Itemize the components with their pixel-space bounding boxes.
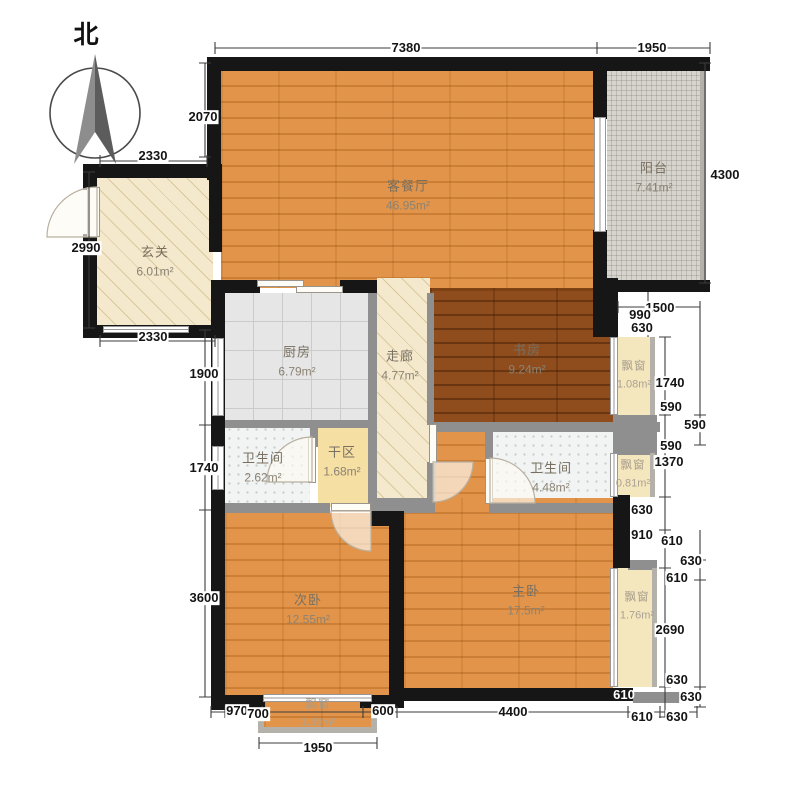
wall <box>207 57 710 71</box>
dim-label: 630 <box>665 710 689 724</box>
wall <box>593 71 607 119</box>
dim-label: 2330 <box>138 330 169 344</box>
wall <box>427 293 434 425</box>
dim-label: 700 <box>246 707 270 721</box>
bay-label-master: 飘窗 1.76m² <box>620 590 654 625</box>
dim-label: 590 <box>683 418 707 432</box>
bay-label-bedroom: 飘窗 1.39m² <box>301 697 335 732</box>
room-label-balcony: 阳台 7.41m² <box>635 159 672 198</box>
bay-master-floor <box>613 568 652 687</box>
kitchen-slider-panel <box>296 286 343 293</box>
dim-label: 1740 <box>655 376 686 390</box>
dim-label: 4300 <box>710 168 741 182</box>
dim-label: 590 <box>659 400 683 414</box>
dim-label: 610 <box>660 534 684 548</box>
room-label-study: 书房 9.24m² <box>508 341 545 380</box>
bed-second-door-leaf <box>331 503 371 511</box>
dim-label: 630 <box>665 673 689 687</box>
room-label-bed-master: 主卧 17.5m² <box>507 582 544 621</box>
bay-label-bath: 飘窗 0.81m² <box>616 458 650 493</box>
dim-label: 1900 <box>189 367 220 381</box>
dim-label: 630 <box>630 503 654 517</box>
wall <box>340 280 377 293</box>
wall <box>211 420 377 428</box>
dim-label: 7380 <box>391 41 422 55</box>
balcony-railing <box>700 63 706 285</box>
room-label-living: 客餐厅 46.95m² <box>386 177 430 216</box>
bay-label-study: 飘窗 1.08m² <box>617 359 651 394</box>
bath-right-door-leaf <box>485 458 493 504</box>
dim-label: 2330 <box>138 149 169 163</box>
dim-label: 910 <box>630 528 654 542</box>
wall <box>209 164 222 252</box>
room-label-bath-left: 卫生间 2.62m² <box>242 449 284 488</box>
dim-label: 610 <box>665 571 689 585</box>
dim-label: 630 <box>679 690 703 704</box>
wall <box>389 688 633 701</box>
dim-label: 1370 <box>654 455 685 469</box>
room-corridor-floor <box>377 278 430 510</box>
study-living-divider <box>430 288 593 291</box>
dim-label: 2070 <box>188 110 219 124</box>
entry-door-leaf <box>87 187 100 237</box>
dim-label: 1950 <box>303 741 334 755</box>
wall <box>389 511 404 700</box>
room-label-bath-right: 卫生间 4.48m² <box>530 459 572 498</box>
wall <box>211 280 260 293</box>
dim-label: 630 <box>679 554 703 568</box>
wall <box>603 280 710 292</box>
dim-label: 2990 <box>71 241 102 255</box>
room-label-entry: 玄关 6.01m² <box>136 243 173 282</box>
dim-label: 590 <box>659 439 683 453</box>
room-label-dry-area: 干区 1.68m² <box>323 443 360 482</box>
dim-label: 4400 <box>498 705 529 719</box>
dim-label: 1740 <box>189 461 220 475</box>
hall-door-leaf <box>429 424 437 464</box>
wall <box>593 230 607 280</box>
dim-label: 2690 <box>655 623 686 637</box>
floor-plan-canvas: 北 客餐厅 46.95m² 阳台 7.41m² 玄关 6.01m² 厨房 6.7… <box>0 0 800 800</box>
dim-label: 610 <box>612 688 636 702</box>
compass-icon <box>50 54 140 164</box>
dim-label: 610 <box>630 710 654 724</box>
wall <box>211 503 330 513</box>
wall <box>83 164 221 178</box>
wall <box>489 503 617 513</box>
room-label-kitchen: 厨房 6.79m² <box>278 343 315 382</box>
window-living-balcony <box>594 117 606 232</box>
wall <box>613 495 630 568</box>
dim-label: 600 <box>371 704 395 718</box>
wall <box>368 280 377 507</box>
north-label: 北 <box>73 15 98 51</box>
dim-label: 1950 <box>637 41 668 55</box>
window-bay-master <box>610 568 618 687</box>
dim-label: 3600 <box>189 591 220 605</box>
wall <box>613 415 657 455</box>
room-label-bed-second: 次卧 12.55m² <box>286 591 330 630</box>
dim-label: 630 <box>630 321 654 335</box>
bath-left-door-leaf <box>308 437 316 483</box>
room-label-corridor: 走廊 4.77m² <box>381 347 418 386</box>
